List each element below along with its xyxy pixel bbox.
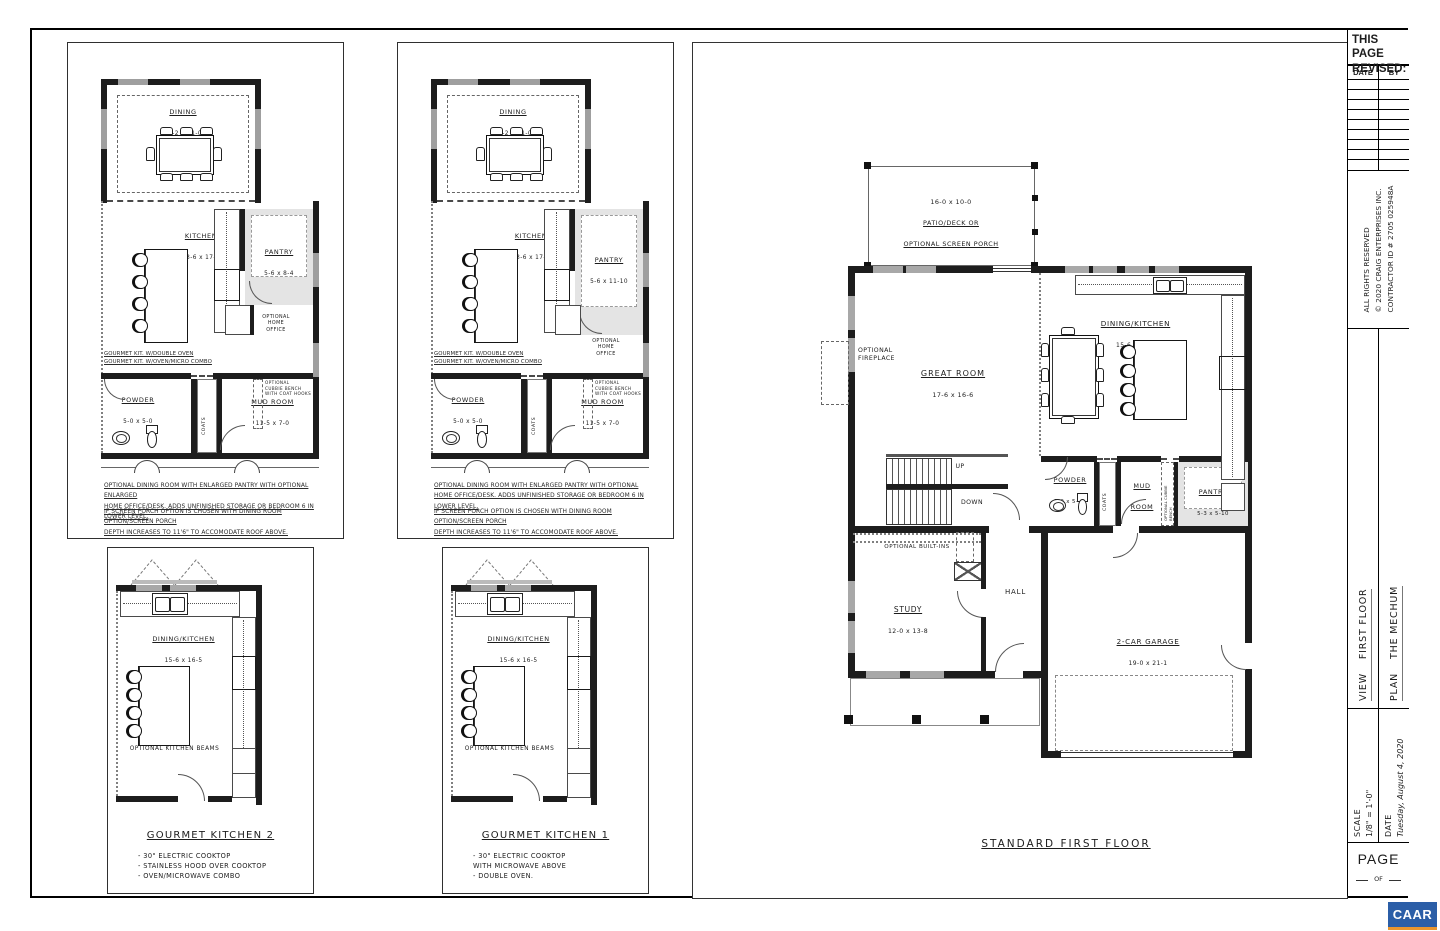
panel-bullets: - 30" ELECTRIC COOKTOP - STAINLESS HOOD … xyxy=(138,851,303,882)
stair-rail xyxy=(886,454,1008,457)
optional-kitchen-beams-label: OPTIONAL KITCHEN BEAMS xyxy=(122,746,227,754)
chair xyxy=(146,147,155,161)
basin xyxy=(112,431,130,445)
revision-date-cell xyxy=(1348,110,1379,119)
revision-row xyxy=(1348,160,1409,171)
kitchen-island xyxy=(144,249,188,343)
caar-logo-text: CAAR xyxy=(1393,907,1433,922)
chair xyxy=(180,173,193,181)
revision-date-cell xyxy=(1348,100,1379,109)
door-arc xyxy=(178,774,205,801)
double-sink xyxy=(152,593,188,615)
patio-post xyxy=(1031,162,1038,169)
chair xyxy=(510,173,523,181)
room-name: POWDER xyxy=(122,396,155,404)
toilet xyxy=(474,425,488,447)
plan-value: THE MECHUM xyxy=(1389,585,1400,658)
chair xyxy=(180,127,193,135)
cubbie-bench-label: OPTIONAL CUBBIE BENCH xyxy=(1163,486,1173,521)
stool xyxy=(463,706,477,720)
room-name: PANTRY xyxy=(595,256,623,264)
plan-sheet-page: DINING14-2 x 11-0 KITCHEN13-6 x 17-9 PAN… xyxy=(0,0,1440,931)
double-sink xyxy=(487,593,523,615)
home-office-desk xyxy=(555,305,581,335)
wall-segment xyxy=(848,671,985,678)
room-name: STUDY xyxy=(894,605,922,614)
room-label-garage: 2-CAR GARAGE19-0 x 21-1 xyxy=(1088,629,1208,671)
double-sink xyxy=(1153,277,1187,294)
stool xyxy=(464,319,478,333)
up-label: UP xyxy=(945,463,975,471)
revised-line1: THIS PAGE xyxy=(1352,33,1405,62)
stool xyxy=(128,724,142,738)
room-name: DINING/KITCHEN xyxy=(1101,319,1170,328)
room-label-dk: DINING/KITCHEN15-6 x 16-5 xyxy=(136,626,231,668)
room-edge-dotted xyxy=(116,591,118,796)
garage-interior-dashed xyxy=(1055,675,1233,751)
wall-segment xyxy=(101,79,261,85)
revision-by-cell xyxy=(1379,110,1409,119)
down-label: DOWN xyxy=(951,499,993,507)
front-porch xyxy=(850,678,1040,726)
stool xyxy=(128,688,142,702)
door-swing-bump xyxy=(234,460,260,473)
room-edge-dotted xyxy=(451,591,453,796)
wall-segment xyxy=(981,617,986,671)
chair xyxy=(490,173,503,181)
drawing-sheet: DINING14-2 x 11-0 KITCHEN13-6 x 17-9 PAN… xyxy=(30,28,1408,898)
plan-caption: STANDARD FIRST FLOOR xyxy=(956,838,1176,852)
revision-by-cell xyxy=(1379,100,1409,109)
garage-door xyxy=(1061,752,1233,758)
chair xyxy=(1096,393,1104,407)
coats-closet xyxy=(197,379,217,453)
revision-row xyxy=(1348,80,1409,90)
stool xyxy=(464,275,478,289)
door-swing-bump xyxy=(464,460,490,473)
door-arc xyxy=(513,774,540,801)
chair xyxy=(200,173,213,181)
revision-by-cell xyxy=(1379,150,1409,159)
coats-label: COATS xyxy=(202,417,207,435)
cubbie-bench-dashed xyxy=(583,379,593,429)
patio-door xyxy=(993,268,1031,269)
gourmet-kit-note: GOURMET KIT. W/DOUBLE OVEN GOURMET KIT. … xyxy=(434,351,594,366)
door-arc xyxy=(995,643,1024,672)
chair xyxy=(1041,368,1049,382)
room-dims: 5-3 x 5-10 xyxy=(1197,511,1229,517)
of-label: OF xyxy=(1374,875,1383,883)
wall-segment xyxy=(431,79,591,85)
wall-segment xyxy=(591,585,597,805)
fireplace-dashed xyxy=(821,341,849,405)
gourmet-kit-note: GOURMET KIT. W/DOUBLE OVEN GOURMET KIT. … xyxy=(104,351,264,366)
panel-gourmet-kitchen-1: DINING/KITCHEN15-6 x 16-5 OPTIONAL KITCH… xyxy=(442,547,649,894)
panel-gourmet-kitchen-2: DINING/KITCHEN15-6 x 16-5 OPTIONAL KITCH… xyxy=(107,547,314,894)
kitchen-counter xyxy=(232,617,256,767)
revision-by-cell xyxy=(1379,120,1409,129)
wall-segment xyxy=(1041,531,1048,758)
home-office-desk xyxy=(225,305,251,335)
stairs-up xyxy=(886,458,952,486)
range-cooktop xyxy=(567,656,591,690)
chair xyxy=(543,147,552,161)
door-swing-bump xyxy=(134,460,160,473)
revision-date-cell xyxy=(1348,130,1379,139)
chair xyxy=(213,147,222,161)
room-name: KITCHEN xyxy=(515,232,547,240)
cubbie-bench-dashed xyxy=(253,379,263,429)
chair xyxy=(1061,327,1075,335)
room-dims: 15-6 x 16-5 xyxy=(165,658,203,664)
revision-row xyxy=(1348,100,1409,110)
scale-column: SCALE 1/8" = 1'-0" xyxy=(1348,709,1379,842)
room-dims: 17-6 x 16-6 xyxy=(932,391,973,399)
revision-by-cell xyxy=(1379,80,1409,89)
room-name: POWDER xyxy=(452,396,485,404)
date-text: DATE Tuesday, August 4, 2020 xyxy=(1383,738,1407,837)
wall-segment xyxy=(250,305,254,335)
page-number-line xyxy=(1356,880,1368,881)
revision-row xyxy=(1348,110,1409,120)
revision-date-cell xyxy=(1348,80,1379,89)
revision-by-cell xyxy=(1379,90,1409,99)
revision-row xyxy=(1348,90,1409,100)
kitchen-counter xyxy=(567,617,591,767)
oven-divider xyxy=(567,773,591,774)
copyright-cell: ALL RIGHTS RESERVED © 2020 CRAIG ENTERPR… xyxy=(1348,171,1409,329)
closet-dashed xyxy=(956,532,974,562)
room-dims: 5-0 x 5-0 xyxy=(453,419,483,425)
kitchen-island xyxy=(138,666,190,746)
panel-title: GOURMET KITCHEN 1 xyxy=(453,829,638,842)
chair xyxy=(1096,343,1104,357)
wall-segment xyxy=(431,453,649,459)
toilet xyxy=(1075,493,1088,514)
dining-table xyxy=(156,135,214,175)
scale-value: 1/8" = 1'-0" xyxy=(1364,789,1376,836)
room-dims: 12-0 x 13-8 xyxy=(888,628,928,635)
refrigerator xyxy=(1221,483,1245,511)
patio-dims: 16-0 x 10-0 xyxy=(930,198,971,206)
toilet xyxy=(144,425,158,447)
panel-dining-option-1: DINING14-2 x 11-0 KITCHEN13-6 x 17-9 PAN… xyxy=(397,42,674,539)
revision-row xyxy=(1348,130,1409,140)
stool xyxy=(1122,402,1136,416)
kitchen-island xyxy=(1133,340,1187,420)
room-dims: 5-0 x 5-0 xyxy=(123,419,153,425)
patio-door xyxy=(993,271,1031,272)
chair xyxy=(476,147,485,161)
room-name: POWDER xyxy=(1054,476,1087,484)
wall-segment xyxy=(585,79,591,203)
revision-date-cell xyxy=(1348,90,1379,99)
room-label-pantry: PANTRY5-6 x 11-10 xyxy=(578,247,640,289)
door-opening-dashed xyxy=(191,375,213,377)
wall-segment xyxy=(848,526,1252,533)
cubbie-bench-label: OPTIONAL CUBBIE BENCH WITH COAT HOOKS xyxy=(595,380,645,397)
room-label-pantry: PANTRY5-6 x 8-4 xyxy=(248,239,310,281)
revised-line2: REVISED: xyxy=(1352,62,1405,76)
basin xyxy=(442,431,460,445)
wall-segment xyxy=(848,266,1252,273)
porch-band xyxy=(467,580,552,584)
wall-segment xyxy=(643,201,649,459)
door-arc xyxy=(1113,533,1138,558)
revision-row xyxy=(1348,140,1409,150)
porch-post xyxy=(912,715,921,724)
patio-post xyxy=(864,162,871,169)
panel-bullets: - 30" ELECTRIC COOKTOP WITH MICROWAVE AB… xyxy=(473,851,638,882)
patio-label: 16-0 x 10-0PATIO/DECK OR OPTIONAL SCREEN… xyxy=(886,189,1016,251)
door-arc xyxy=(993,493,1020,520)
room-name: KITCHEN xyxy=(185,232,217,240)
stool xyxy=(1122,345,1136,359)
dining-table xyxy=(1049,335,1099,419)
page-cell: PAGE OF xyxy=(1348,843,1409,893)
stool xyxy=(464,253,478,267)
basin xyxy=(1049,499,1066,512)
rights-line: ALL RIGHTS RESERVED xyxy=(1361,186,1373,313)
stool xyxy=(128,706,142,720)
wall-segment xyxy=(431,79,437,203)
chase-xbox xyxy=(954,562,982,581)
chair xyxy=(530,173,543,181)
plan-label: PLAN xyxy=(1389,672,1400,700)
patio-name: PATIO/DECK OR OPTIONAL SCREEN PORCH xyxy=(903,219,998,248)
date-label: DATE xyxy=(1383,738,1395,837)
scale-text: SCALE 1/8" = 1'-0" xyxy=(1352,789,1376,836)
room-name: PANTRY xyxy=(265,248,293,256)
chair xyxy=(1096,368,1104,382)
chair xyxy=(510,127,523,135)
stool xyxy=(464,297,478,311)
revised-header: THIS PAGE REVISED: xyxy=(1348,30,1409,66)
door-swing-bump xyxy=(564,460,590,473)
room-divider-dotted xyxy=(1039,273,1041,456)
view-value: FIRST FLOOR xyxy=(1358,588,1369,659)
optional-home-office-label: OPTIONAL HOME OFFICE xyxy=(256,315,296,334)
chair xyxy=(160,173,173,181)
wall-segment xyxy=(101,79,107,203)
page-label: PAGE xyxy=(1348,850,1409,868)
dining-table xyxy=(486,135,544,175)
wall-opening-dashed xyxy=(437,200,585,202)
wall-opening-dashed xyxy=(107,200,255,202)
chair xyxy=(1041,393,1049,407)
page-total-line xyxy=(1389,880,1401,881)
wall-segment xyxy=(313,201,319,459)
stairs-down xyxy=(886,489,952,525)
door-opening-dashed xyxy=(1161,458,1179,460)
wall-segment xyxy=(255,79,261,203)
porch-post xyxy=(980,715,989,724)
room-name: DINING xyxy=(169,108,196,116)
room-name: DINING/KITCHEN xyxy=(152,635,214,643)
revision-by-cell xyxy=(1379,130,1409,139)
date-column: DATE Tuesday, August 4, 2020 xyxy=(1379,709,1409,842)
optional-kitchen-beams-label: OPTIONAL KITCHEN BEAMS xyxy=(457,746,562,754)
scale-date-cell: SCALE 1/8" = 1'-0" DATE Tuesday, August … xyxy=(1348,709,1409,843)
chair xyxy=(530,127,543,135)
wall-segment xyxy=(256,585,262,805)
chair xyxy=(160,127,173,135)
revision-date-cell xyxy=(1348,140,1379,149)
room-name: DINING xyxy=(499,108,526,116)
view-label: VIEW xyxy=(1358,673,1369,701)
room-label-great: GREAT ROOM17-6 x 16-6 xyxy=(898,361,1008,403)
room-dims: 5-6 x 8-4 xyxy=(264,271,294,277)
chair xyxy=(200,127,213,135)
stool xyxy=(463,724,477,738)
chair xyxy=(490,127,503,135)
room-dims: 15-6 x 16-5 xyxy=(500,658,538,664)
title-block: THIS PAGE REVISED: DATE BY ALL RIGHTS RE… xyxy=(1347,30,1409,896)
revision-date-cell xyxy=(1348,160,1379,170)
date-value: Tuesday, August 4, 2020 xyxy=(1395,738,1407,837)
view-text: VIEWFIRST FLOOR xyxy=(1358,588,1372,700)
revision-row xyxy=(1348,120,1409,130)
room-dims: 5-6 x 11-10 xyxy=(590,279,628,285)
range-cooktop xyxy=(544,269,570,301)
door-opening-dashed xyxy=(521,375,543,377)
revision-date-cell xyxy=(1348,150,1379,159)
coats-label: COATS xyxy=(532,417,537,435)
plan-column: PLANTHE MECHUM xyxy=(1379,329,1409,708)
chair xyxy=(1041,343,1049,357)
panel-note-2: IF SCREEN PORCH OPTION IS CHOSEN WITH DI… xyxy=(104,507,318,538)
hall-label: HALL xyxy=(993,588,1038,597)
room-label-study: STUDY12-0 x 13-8 xyxy=(873,597,943,639)
deck-edge-dotted xyxy=(431,201,433,453)
kitchen-island xyxy=(474,249,518,343)
room-dims: 19-0 x 21-1 xyxy=(1129,660,1168,667)
stool xyxy=(134,297,148,311)
caar-logo: CAAR xyxy=(1388,902,1437,930)
door-arc xyxy=(957,591,984,618)
kitchen-island xyxy=(473,666,525,746)
view-column: VIEWFIRST FLOOR xyxy=(1348,329,1379,708)
wall-segment xyxy=(451,796,513,802)
room-name: 2-CAR GARAGE xyxy=(1117,637,1180,646)
range-cooktop xyxy=(214,269,240,301)
wall-segment xyxy=(208,796,232,802)
coats-label: COATS xyxy=(1103,493,1108,511)
panel-title: GOURMET KITCHEN 2 xyxy=(118,829,303,842)
page-of-row: OF xyxy=(1348,875,1409,883)
copyright-line: © 2020 CRAIG ENTERPRISES INC. xyxy=(1373,186,1385,313)
copyright-text: ALL RIGHTS RESERVED © 2020 CRAIG ENTERPR… xyxy=(1361,186,1397,313)
stool xyxy=(128,670,142,684)
wall-segment xyxy=(848,266,855,678)
door-arc xyxy=(1221,645,1246,670)
deck-edge-dotted xyxy=(101,201,103,453)
panel-dining-option-2: DINING14-2 x 11-0 KITCHEN13-6 x 17-9 PAN… xyxy=(67,42,344,539)
wall-segment xyxy=(981,531,986,589)
stool xyxy=(1122,383,1136,397)
porch-post xyxy=(844,715,853,724)
patio-post xyxy=(1032,195,1038,201)
chair xyxy=(1061,416,1075,424)
revision-by-cell xyxy=(1379,160,1409,170)
stool xyxy=(463,670,477,684)
range-cooktop xyxy=(1219,356,1247,390)
range-cooktop xyxy=(232,656,256,690)
door-arc xyxy=(220,425,245,450)
stool xyxy=(134,253,148,267)
revision-row xyxy=(1348,150,1409,160)
room-name: DINING/KITCHEN xyxy=(487,635,549,643)
wall-segment xyxy=(543,796,567,802)
stool xyxy=(134,319,148,333)
oven-divider xyxy=(232,773,256,774)
stool xyxy=(134,275,148,289)
patio-post xyxy=(1032,229,1038,235)
porch-band xyxy=(132,580,217,584)
room-label-dk: DINING/KITCHEN15-6 x 16-5 xyxy=(471,626,566,668)
scale-label: SCALE xyxy=(1352,789,1364,836)
revision-by-cell xyxy=(1379,140,1409,149)
revision-date-cell xyxy=(1348,120,1379,129)
coats-closet xyxy=(527,379,547,453)
wall-segment xyxy=(101,453,319,459)
wall-segment xyxy=(981,671,1043,678)
stool xyxy=(463,688,477,702)
main-plan-box: 16-0 x 10-0PATIO/DECK OR OPTIONAL SCREEN… xyxy=(692,42,1348,899)
door-opening-dashed xyxy=(1097,458,1117,460)
contractor-line: CONTRACTOR ID # 2705 025948A xyxy=(1384,186,1396,313)
panel-note-2: IF SCREEN PORCH OPTION IS CHOSEN WITH DI… xyxy=(434,507,648,538)
stool xyxy=(1122,364,1136,378)
room-name: GREAT ROOM xyxy=(921,369,985,378)
wall-segment xyxy=(116,796,178,802)
plan-text: PLANTHE MECHUM xyxy=(1389,585,1403,700)
cubbie-bench-label: OPTIONAL CUBBIE BENCH WITH COAT HOOKS xyxy=(265,380,315,397)
view-plan-cell: VIEWFIRST FLOOR PLANTHE MECHUM xyxy=(1348,329,1409,709)
door-arc xyxy=(550,425,575,450)
